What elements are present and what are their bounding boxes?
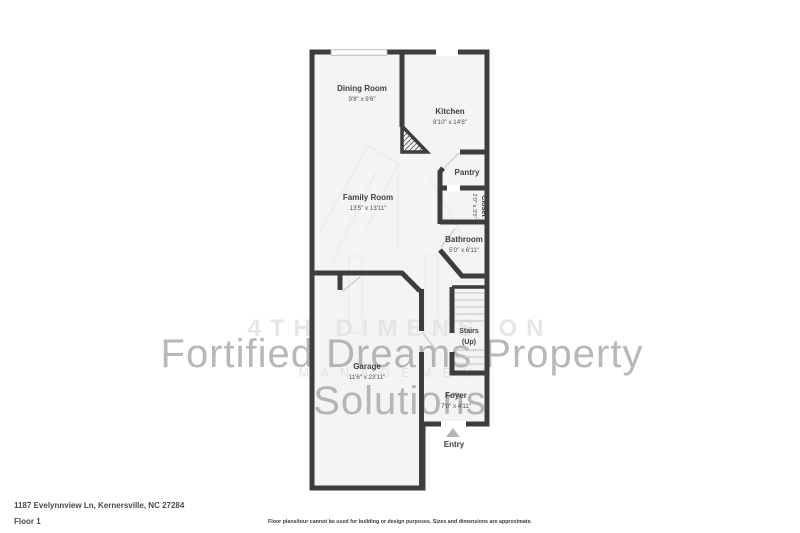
watermark-front-line1: Fortified Dreams Property <box>161 332 644 376</box>
watermark-front-line2: Solutions <box>313 379 487 423</box>
room-dims-foyer: 7'0" x 4'11" <box>441 403 471 410</box>
room-dims-bathroom: 5'0" x 6'11" <box>449 247 479 254</box>
entry-arrow-icon <box>446 428 460 437</box>
watermark: 4TH DIMENSION MANAGEMENT Fortified Dream… <box>161 315 644 423</box>
room-label-family: Family Room <box>343 193 393 202</box>
room-label-pantry: Pantry <box>455 168 480 177</box>
kitchen-window-gap <box>436 49 458 56</box>
entry-door-gap <box>441 421 466 428</box>
closet-door-gap <box>447 185 460 192</box>
room-label-dining: Dining Room <box>337 84 387 93</box>
footer: 1187 Evelynnview Ln, Kernersville, NC 27… <box>14 501 533 526</box>
room-label-kitchen: Kitchen <box>435 107 464 116</box>
address-text: 1187 Evelynnview Ln, Kernersville, NC 27… <box>14 501 185 510</box>
room-dims-dining: 9'8" x 9'6" <box>348 96 375 103</box>
entry-label: Entry <box>444 440 465 449</box>
room-dims-garage: 11'6" x 23'11" <box>349 374 385 381</box>
room-label-bathroom: Bathroom <box>445 235 483 244</box>
floor-plan-page: 4TH DIMENSION MANAGEMENT Fortified Dream… <box>0 0 800 533</box>
disclaimer-text: Floor plans/tour cannot be used for buil… <box>268 519 533 525</box>
room-label-closet: Closet <box>480 195 487 217</box>
room-dims-closet: 2'0" x 3'5" <box>471 193 477 218</box>
room-dims-kitchen: 8'10" x 14'8" <box>433 119 467 126</box>
room-label-foyer: Foyer <box>445 391 467 400</box>
room-label-garage: Garage <box>353 362 381 371</box>
floor-plan-canvas: 4TH DIMENSION MANAGEMENT Fortified Dream… <box>0 0 800 533</box>
floor-label: Floor 1 <box>14 517 41 526</box>
room-label-stairs: Stairs <box>459 328 479 335</box>
room-dims-family: 13'5" x 13'11" <box>350 205 387 212</box>
room-label-stairs-up: (Up) <box>462 339 476 346</box>
